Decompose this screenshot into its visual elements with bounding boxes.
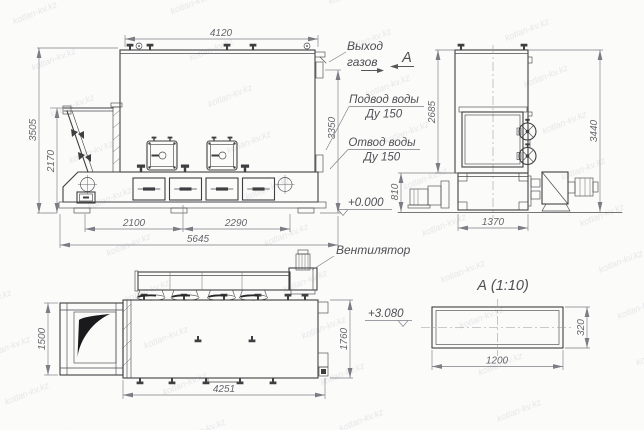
label-level-zero: +0.000 — [348, 197, 384, 209]
boiler-technical-drawing: kotlan-kv.kz — [0, 0, 644, 430]
label-water-supply-dn: Ду 150 — [364, 109, 403, 121]
label-gas-outlet-1: Выход — [347, 39, 383, 53]
dim-side-body-height: 2685 — [427, 100, 438, 124]
dim-front-height-total: 3505 — [28, 118, 39, 141]
label-water-supply: Подвод воды — [349, 94, 419, 106]
dim-front-width: 4120 — [210, 28, 233, 39]
section-a-title: А (1:10) — [476, 278, 529, 294]
label-fan: Вентилятор — [336, 243, 411, 257]
dim-front-span-left: 2100 — [122, 218, 146, 229]
label-level-gas-axis: +3.080 — [368, 308, 404, 320]
dim-plan-width: 1760 — [339, 327, 350, 350]
dim-front-height-hopper: 2170 — [46, 149, 57, 173]
view-direction-letter: А — [401, 50, 412, 66]
dim-section-width: 1200 — [486, 356, 509, 367]
label-water-return-dn: Ду 150 — [362, 152, 401, 164]
dim-front-gas-height: 3350 — [327, 116, 338, 139]
dim-plan-hopper-width: 1500 — [37, 327, 48, 350]
label-gas-outlet-2: газов — [347, 55, 378, 69]
watermark-layer — [0, 0, 644, 430]
dim-side-base-width: 1370 — [482, 217, 505, 228]
dim-side-total-height: 3440 — [589, 119, 600, 142]
dim-front-span-right: 2290 — [224, 218, 248, 229]
label-water-return: Отвод воды — [348, 137, 416, 149]
dim-section-height: 320 — [576, 319, 587, 336]
dim-plan-length: 4251 — [213, 384, 235, 395]
dim-front-length-total: 5645 — [187, 234, 210, 245]
drawing-canvas: kotlan-kv.kz — [0, 0, 644, 430]
dim-side-base-height: 810 — [390, 183, 401, 200]
